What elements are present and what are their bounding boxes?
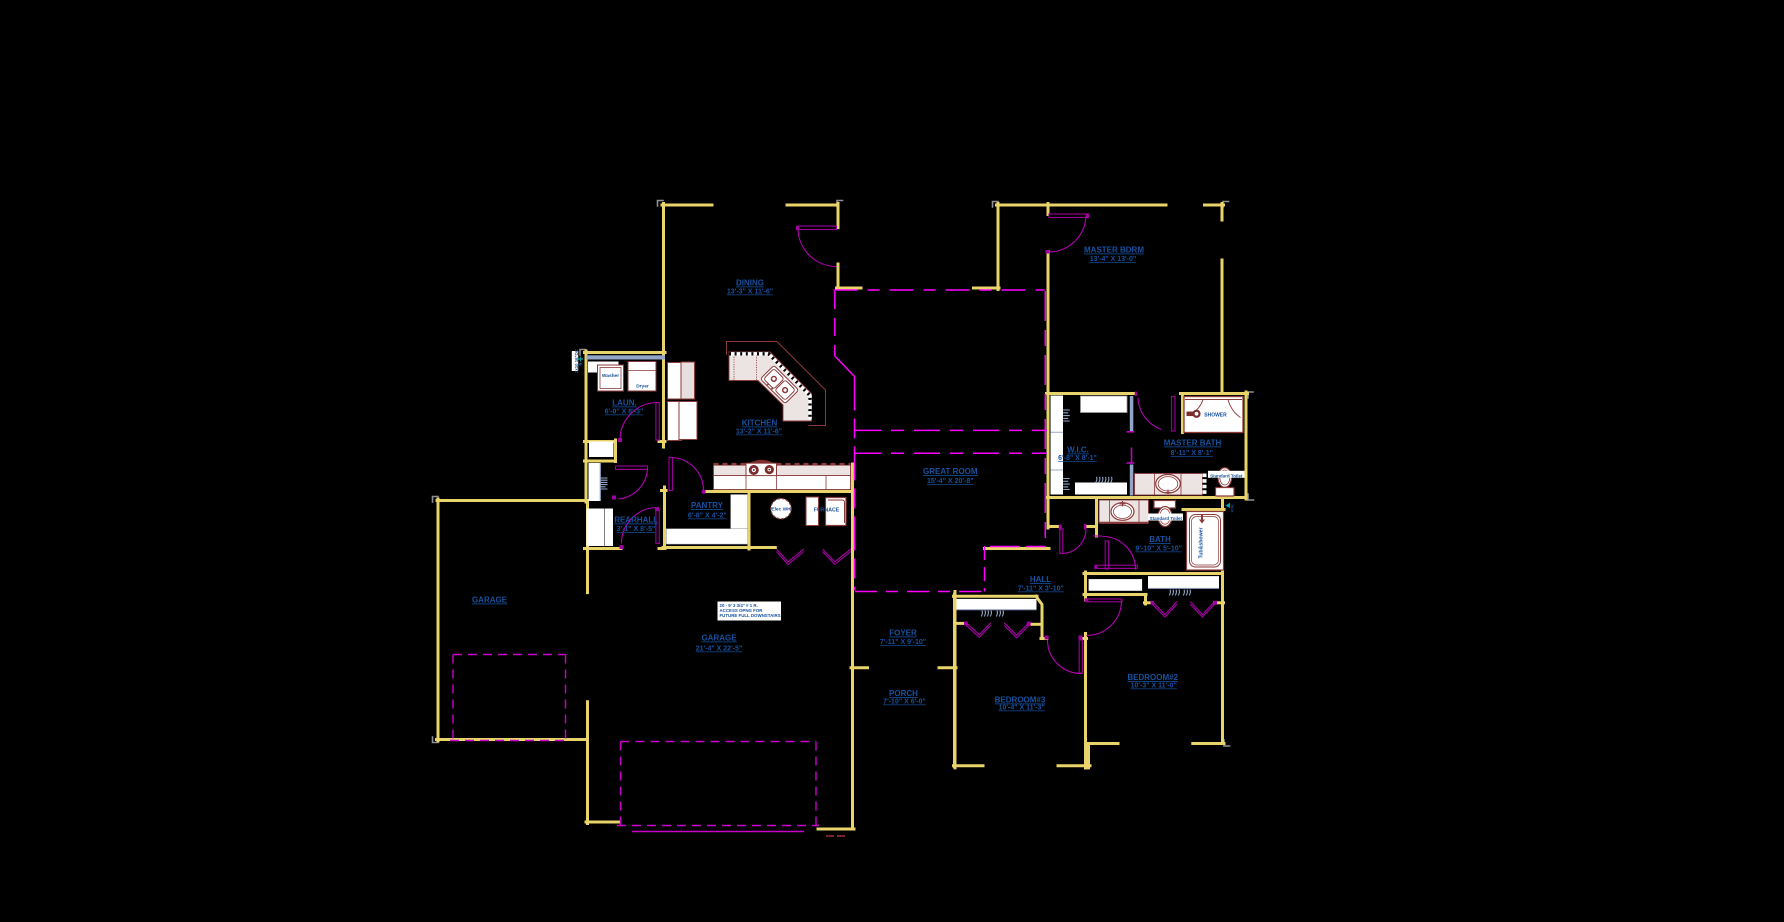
svg-text:W.I.C.: W.I.C. <box>1067 446 1089 455</box>
svg-text:GARAGE: GARAGE <box>701 634 737 643</box>
svg-text:FUTURE FULL DOWNSTAIRS: FUTURE FULL DOWNSTAIRS <box>720 613 781 618</box>
svg-text:Elec WH: Elec WH <box>771 507 791 513</box>
svg-text:FURNACE: FURNACE <box>814 508 840 514</box>
svg-text:9'-10" X 5'-10": 9'-10" X 5'-10" <box>1135 546 1182 553</box>
svg-text:7'-11" X 9'-10": 7'-11" X 9'-10" <box>880 639 926 646</box>
svg-text:FOYER: FOYER <box>889 629 917 638</box>
svg-text:Tub&shower: Tub&shower <box>1199 527 1205 558</box>
svg-text:21'-4" X 22'-5": 21'-4" X 22'-5" <box>696 646 743 653</box>
svg-text:Washer: Washer <box>602 373 619 379</box>
svg-text:BEDROOM#2: BEDROOM#2 <box>1127 673 1178 682</box>
svg-text:10'-4" X 11'-3": 10'-4" X 11'-3" <box>999 705 1045 712</box>
svg-text:Standard Toilet: Standard Toilet <box>1150 516 1183 521</box>
svg-text:GREAT ROOM: GREAT ROOM <box>923 467 978 476</box>
svg-text:6'-8" X 8'-1": 6'-8" X 8'-1" <box>1058 455 1097 462</box>
svg-text:7'-11" X 3'-10": 7'-11" X 3'-10" <box>1018 586 1064 593</box>
svg-text:8'-11" X 8'-1": 8'-11" X 8'-1" <box>1171 450 1213 457</box>
svg-text:LAUN.: LAUN. <box>612 399 636 408</box>
svg-text:BATH: BATH <box>1149 535 1171 544</box>
svg-text:7'-10" X 6'-0": 7'-10" X 6'-0" <box>883 699 926 706</box>
svg-text:15'-4" X 20'-8": 15'-4" X 20'-8" <box>927 478 974 485</box>
svg-text:PANTRY: PANTRY <box>691 501 724 510</box>
svg-text:Standard Toilet: Standard Toilet <box>1210 473 1243 478</box>
svg-text:2x10 16"OC: 2x10 16"OC <box>574 349 579 373</box>
svg-text:13'-2" X 11'-6": 13'-2" X 11'-6" <box>736 429 782 436</box>
svg-text:Dryer: Dryer <box>636 383 649 389</box>
svg-text:KITCHEN: KITCHEN <box>742 419 778 428</box>
svg-text:BEDROOM#3: BEDROOM#3 <box>995 696 1046 705</box>
svg-text:DINING: DINING <box>736 279 764 288</box>
svg-text:HALL: HALL <box>1030 575 1051 584</box>
svg-text:GARAGE: GARAGE <box>472 596 508 605</box>
svg-text:PORCH: PORCH <box>889 689 918 698</box>
svg-text:SHOWER: SHOWER <box>1204 413 1227 419</box>
svg-text:6'-8" X 4'-2": 6'-8" X 4'-2" <box>688 513 727 520</box>
svg-text:MASTER BATH: MASTER BATH <box>1164 439 1222 448</box>
svg-text:13'-3" X 11'-6": 13'-3" X 11'-6" <box>727 289 773 296</box>
svg-text:13'-4" X 13'-0": 13'-4" X 13'-0" <box>1090 256 1137 263</box>
svg-text:6'-0" X 8'-3": 6'-0" X 8'-3" <box>605 409 644 416</box>
svg-text:Attic: Attic <box>1230 503 1235 513</box>
svg-text:10'-3" X 11'-0": 10'-3" X 11'-0" <box>1131 683 1177 690</box>
svg-text:3'-1" X 8'-5": 3'-1" X 8'-5" <box>617 526 656 533</box>
svg-text:MASTER BDRM: MASTER BDRM <box>1084 246 1144 255</box>
svg-text:REARHALL: REARHALL <box>614 516 658 525</box>
